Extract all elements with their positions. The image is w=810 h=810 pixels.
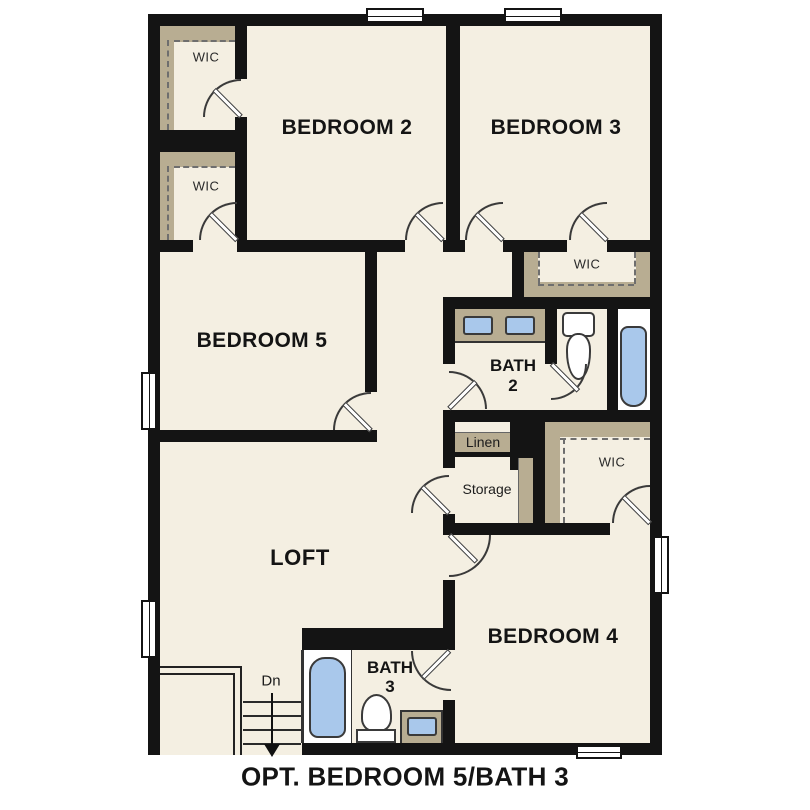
wall-segment [443, 580, 455, 628]
window [653, 536, 669, 594]
room-label-bath2: BATH [490, 356, 536, 376]
wall-segment [148, 240, 193, 252]
shelf-dashed-line [538, 252, 540, 284]
wall-segment [443, 700, 455, 743]
window [576, 745, 622, 759]
wall-segment [235, 26, 247, 79]
bath2-tub [620, 326, 647, 407]
room-label-bedroom3: BEDROOM 3 [491, 116, 622, 140]
shelf-dashed-line [560, 438, 650, 440]
wall-segment [512, 252, 524, 297]
plan-caption: OPT. BEDROOM 5/BATH 3 [241, 762, 569, 793]
wall-segment [443, 514, 455, 523]
window [141, 600, 157, 658]
window [366, 8, 424, 23]
wall-segment [503, 240, 567, 252]
bath2-sink-right [505, 316, 535, 335]
wall-segment [545, 309, 557, 364]
wall-segment [148, 430, 377, 442]
room-label-wic-right-lower: WIC [599, 455, 625, 470]
closet-shelf [545, 422, 560, 523]
room-label-bath2-number: 2 [508, 376, 517, 396]
window [141, 372, 157, 430]
wall-segment [443, 240, 465, 252]
shelf-dashed-line [167, 40, 169, 130]
bath3-tub [309, 657, 346, 738]
wall-segment [533, 470, 545, 523]
wall-segment [443, 422, 455, 468]
wall-segment [443, 523, 610, 535]
room-label-storage: Storage [462, 481, 511, 497]
wall-segment [446, 26, 460, 240]
stairs-down-label: Dn [261, 673, 280, 690]
closet-shelf [545, 422, 650, 437]
room-label-loft: LOFT [270, 545, 330, 571]
wall-segment [650, 14, 662, 755]
wall-segment [365, 252, 377, 392]
wall-segment [443, 410, 662, 422]
shelf-dashed-line [174, 166, 235, 168]
shelf-dashed-line [563, 438, 565, 523]
bath3-toilet-bowl [361, 694, 392, 732]
stair-down-arrowhead [264, 744, 280, 757]
wall-segment [302, 628, 455, 650]
shelf-dashed-line [167, 166, 169, 240]
floor-plan: BEDROOM 2 BEDROOM 3 BEDROOM 5 BEDROOM 4 … [0, 0, 810, 810]
room-label-wic-top-left: WIC [193, 50, 219, 65]
shelf-dashed-line [634, 252, 636, 284]
wall-segment [443, 309, 455, 364]
wall-segment [235, 117, 247, 130]
bath3-sink [407, 717, 437, 736]
shelf-dashed-line [538, 284, 634, 286]
shelf-dashed-line [174, 40, 235, 42]
wall-segment [237, 240, 405, 252]
stair-railing-inner [160, 673, 235, 755]
wall-segment [607, 240, 662, 252]
window [504, 8, 562, 23]
room-label-bedroom5: BEDROOM 5 [197, 329, 328, 353]
stair-edge-line [301, 650, 303, 743]
wall-segment [443, 297, 662, 309]
room-label-bedroom4: BEDROOM 4 [488, 625, 619, 649]
room-label-bedroom2: BEDROOM 2 [282, 116, 413, 140]
wall-segment [148, 130, 247, 152]
room-label-linen: Linen [466, 434, 500, 450]
wall-segment [607, 309, 618, 410]
bath2-sink-left [463, 316, 493, 335]
room-label-wic-mid-left: WIC [193, 179, 219, 194]
room-label-bath3: BATH [367, 658, 413, 678]
bath3-toilet-tank [356, 729, 396, 743]
room-label-bath3-number: 3 [385, 677, 394, 697]
room-label-wic-right-upper: WIC [574, 257, 600, 272]
stair-down-arrow [271, 693, 273, 745]
wall-segment [455, 452, 510, 457]
storage-shelf [518, 458, 533, 523]
